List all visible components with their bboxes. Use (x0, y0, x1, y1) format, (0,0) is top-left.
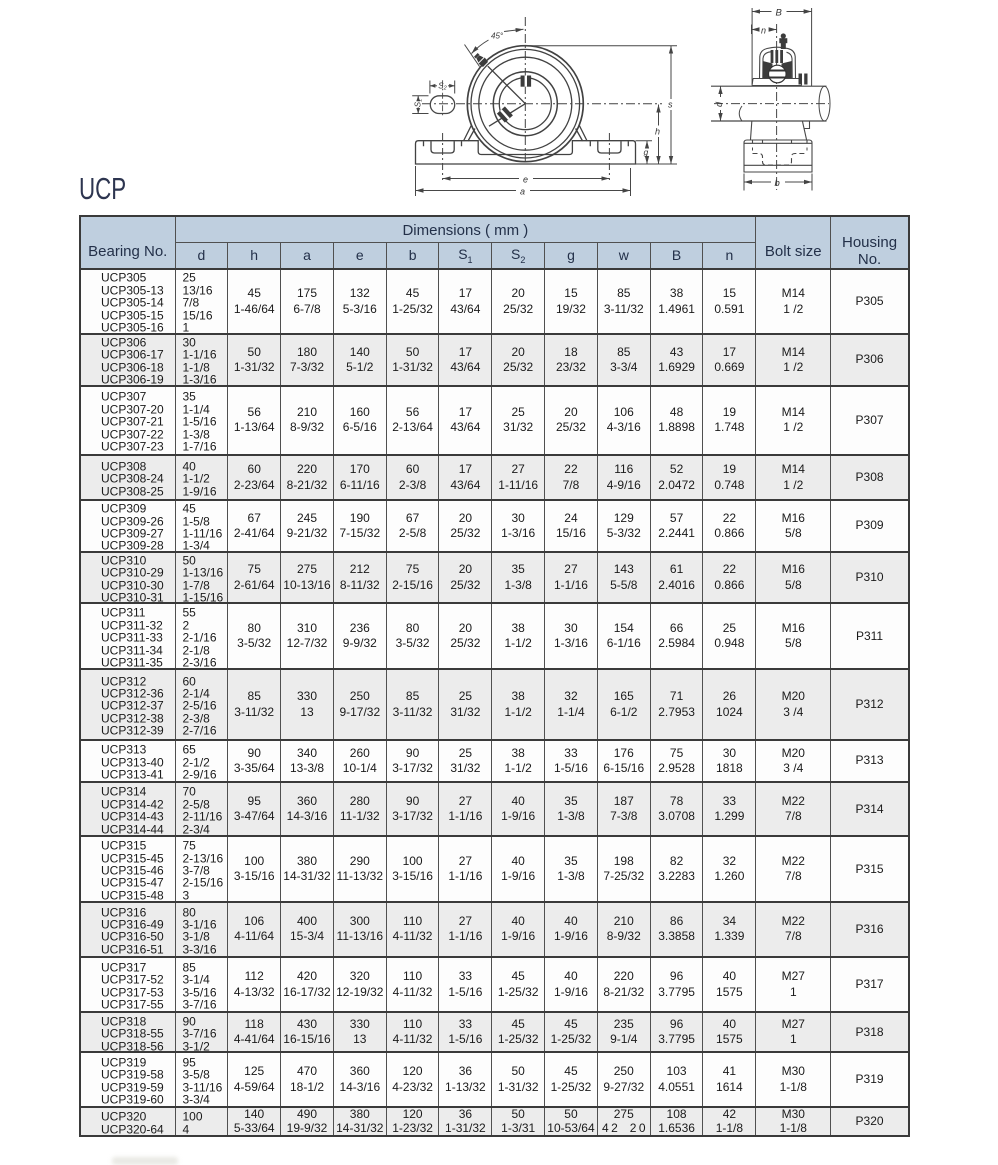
svg-text:S1: S1 (413, 99, 423, 107)
svg-text:n: n (761, 26, 766, 36)
svg-text:a: a (520, 187, 525, 197)
svg-text:e: e (523, 175, 528, 185)
svg-text:s: s (668, 100, 673, 110)
svg-text:B: B (776, 8, 783, 19)
svg-text:g: g (644, 147, 649, 157)
svg-text:d: d (714, 101, 724, 107)
svg-text:S2: S2 (438, 82, 446, 92)
svg-text:b: b (775, 178, 780, 189)
svg-text:h: h (655, 127, 660, 137)
svg-text:45°: 45° (491, 32, 504, 41)
